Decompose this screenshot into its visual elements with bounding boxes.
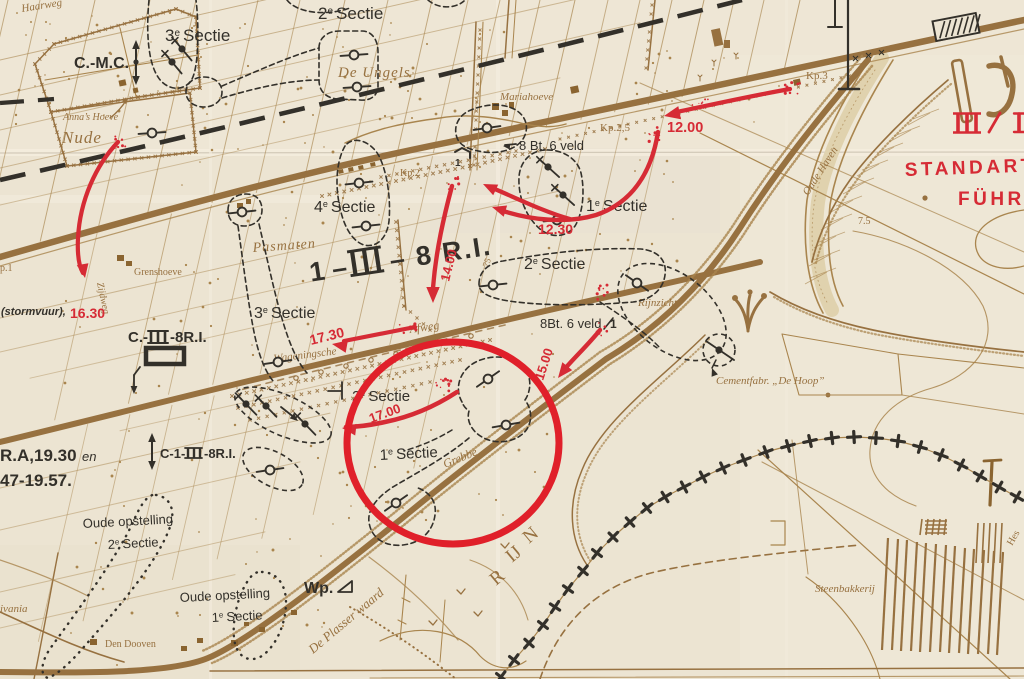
svg-text:1 –: 1 – [307, 252, 349, 287]
svg-text:8 Bt. 6 veld: 8 Bt. 6 veld [519, 138, 584, 153]
svg-text:Steenbakkerij: Steenbakkerij [815, 583, 875, 595]
svg-text:ivania: ivania [0, 603, 28, 615]
svg-text:Rijnzicht: Rijnzicht [637, 297, 678, 309]
svg-text:-8R.I.: -8R.I. [170, 329, 207, 346]
svg-text:-8R.I.: -8R.I. [204, 446, 236, 461]
svg-text:Anna’s Hoeve: Anna’s Hoeve [62, 112, 119, 123]
svg-text:1eSectie: 1eSectie [211, 607, 263, 625]
svg-text:Den Dooven: Den Dooven [105, 639, 156, 650]
svg-text:2eSectie: 2eSectie [107, 534, 159, 552]
svg-text:STANDART: STANDART [904, 155, 1024, 181]
svg-text:Kp.3: Kp.3 [806, 70, 828, 82]
svg-text:en: en [82, 449, 96, 464]
svg-text:De Ungels: De Ungels [337, 65, 411, 81]
svg-text:47-19.57.: 47-19.57. [0, 471, 72, 490]
svg-text:Wp.: Wp. [304, 580, 333, 597]
svg-text:16.30: 16.30 [70, 305, 105, 321]
svg-text:(stormvuur),: (stormvuur), [1, 306, 66, 318]
svg-text:7.5: 7.5 [858, 216, 871, 227]
svg-text:Cementfabr. „De Hoop”: Cementfabr. „De Hoop” [716, 375, 824, 387]
svg-text:p.1: p.1 [0, 263, 13, 274]
svg-text:Mariahoeve: Mariahoeve [499, 91, 553, 103]
svg-text:Kp.2,5: Kp.2,5 [600, 122, 630, 134]
svg-text:1: 1 [455, 158, 461, 169]
svg-text:C-1-: C-1- [160, 446, 185, 461]
svg-text:Grenshoeve: Grenshoeve [134, 267, 182, 278]
svg-text:12.00: 12.00 [667, 120, 703, 136]
svg-text:1: 1 [610, 317, 617, 331]
svg-text:C.-M.C.: C.-M.C. [74, 55, 129, 72]
svg-text:8Bt. 6 veld: 8Bt. 6 veld [540, 316, 601, 331]
svg-text:R.A,19.30: R.A,19.30 [0, 446, 77, 465]
svg-text:Kp.2: Kp.2 [400, 168, 420, 179]
svg-text:1eSectie: 1eSectie [379, 444, 438, 464]
svg-text:Nude: Nude [61, 128, 102, 147]
svg-text:C.-: C.- [128, 329, 148, 346]
svg-text:FÜHR: FÜHR [958, 189, 1024, 210]
svg-text:12.30: 12.30 [538, 221, 573, 237]
